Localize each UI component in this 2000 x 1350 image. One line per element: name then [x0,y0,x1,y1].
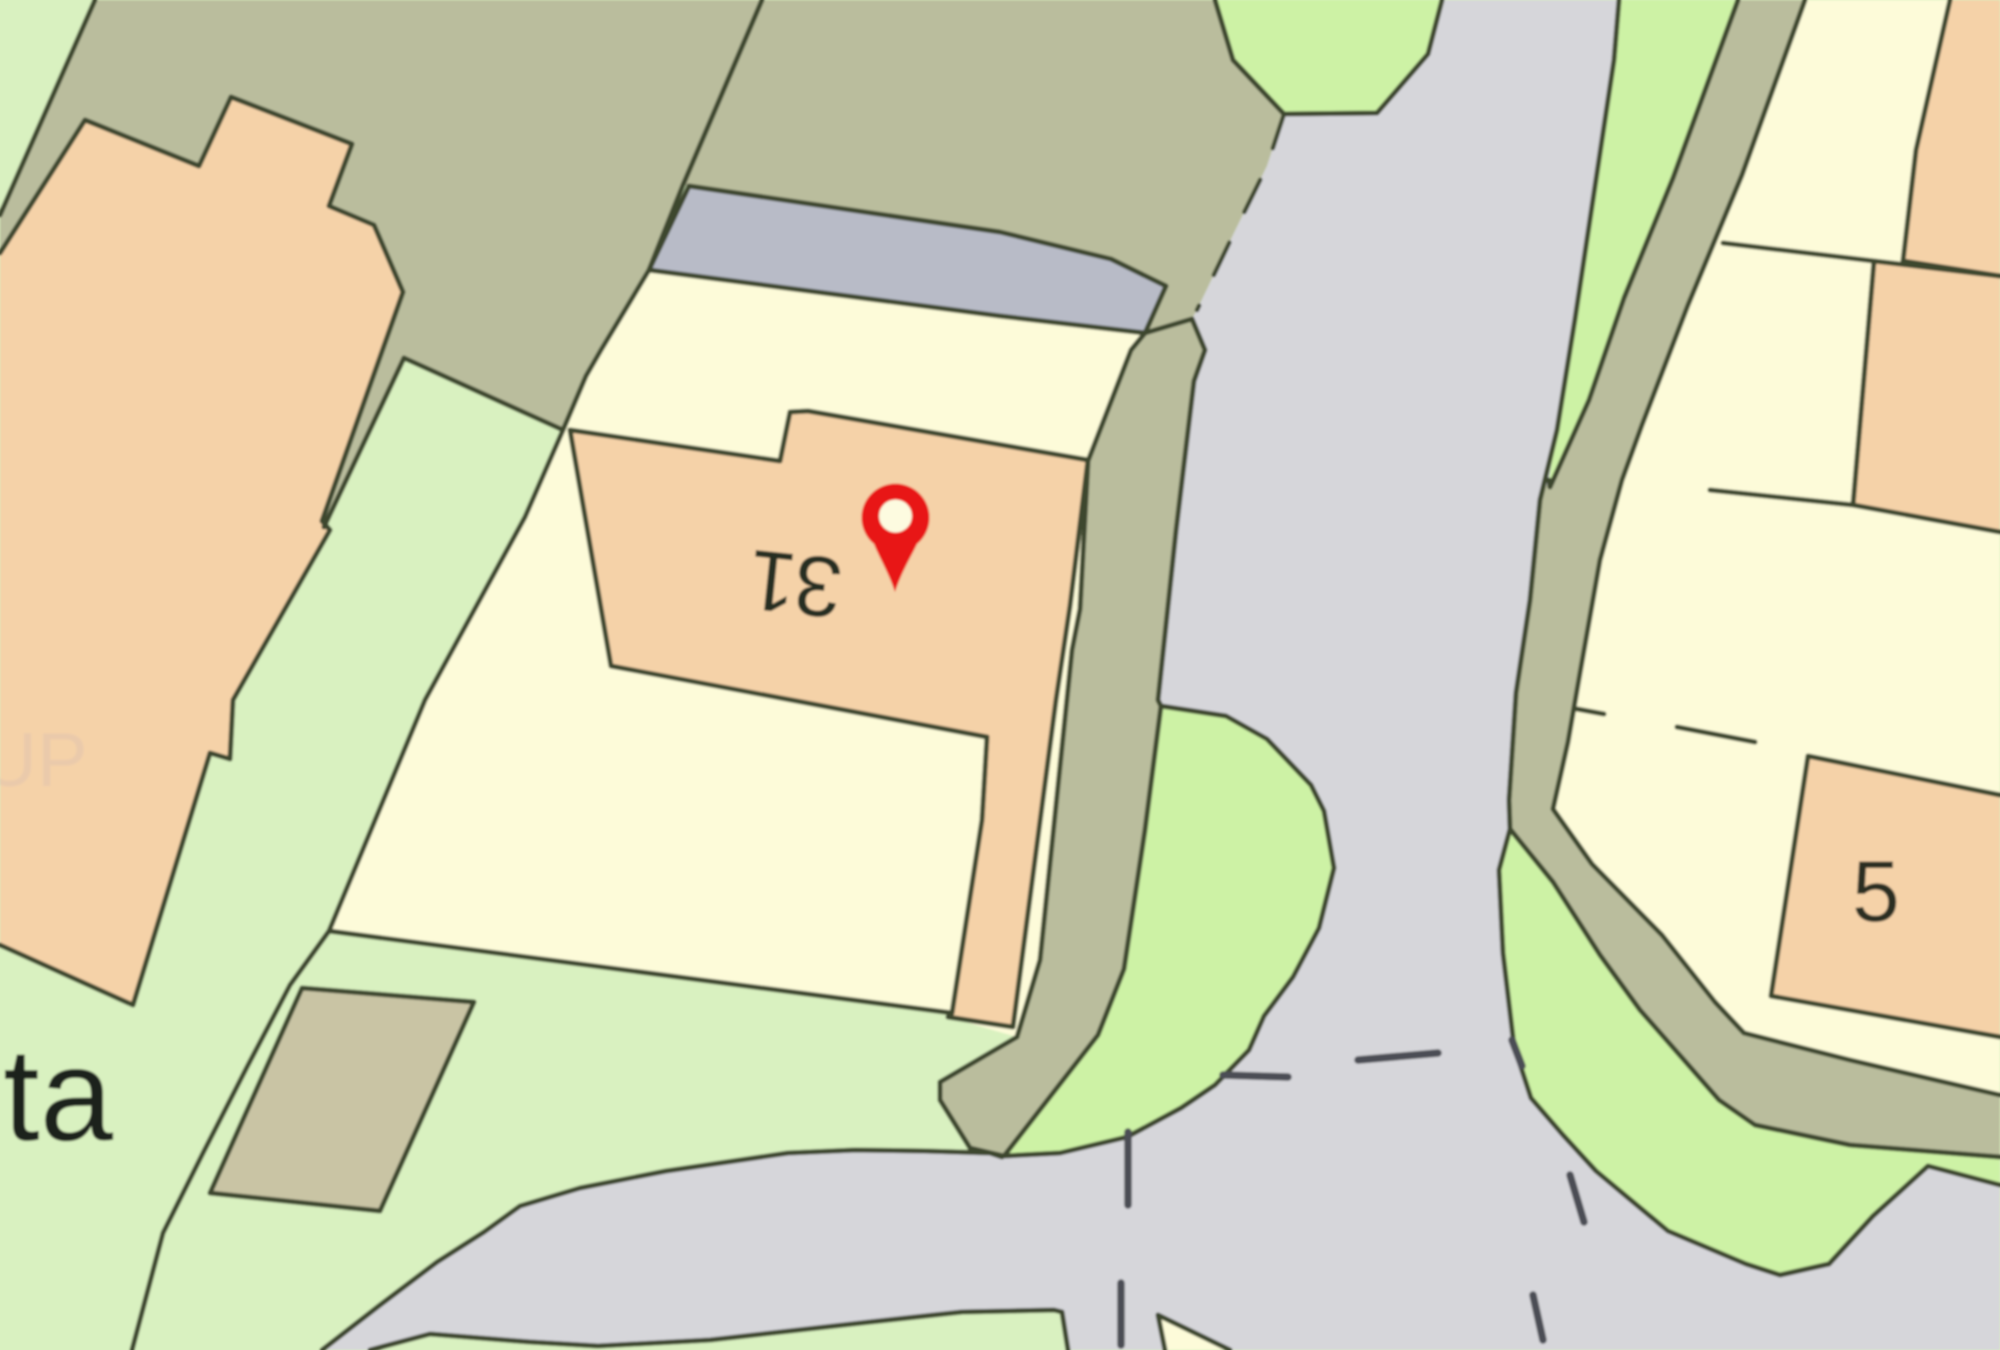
svg-text:ta: ta [3,1021,114,1168]
svg-text:5: 5 [1852,844,1900,940]
svg-text:UP: UP [0,718,88,803]
svg-text:31: 31 [746,531,847,636]
